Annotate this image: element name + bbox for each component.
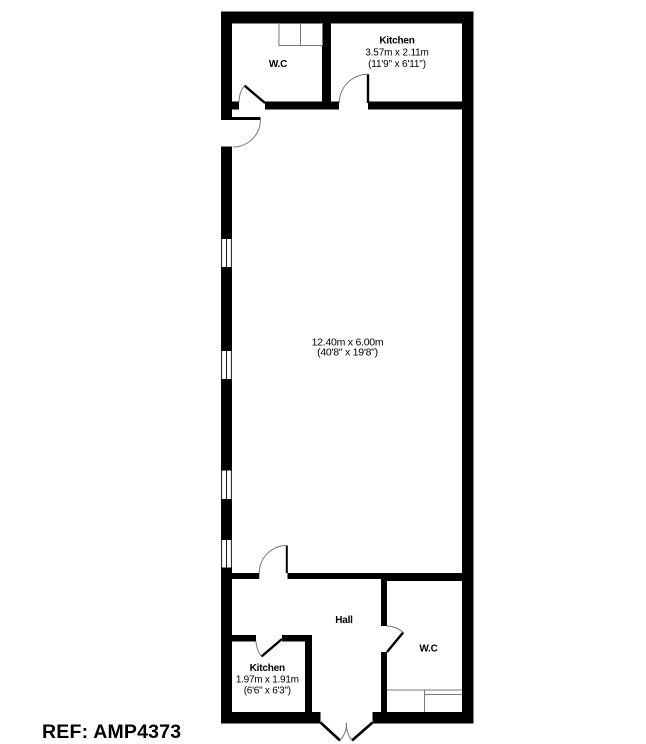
svg-text:(11'9" x 6'11"): (11'9" x 6'11")	[368, 59, 426, 70]
svg-text:(40'8" x 19'8"): (40'8" x 19'8")	[317, 346, 378, 358]
svg-text:Hall: Hall	[335, 615, 353, 626]
svg-text:REF: AMP4373: REF: AMP4373	[42, 721, 181, 743]
svg-text:3.57m x 2.11m: 3.57m x 2.11m	[365, 48, 428, 59]
svg-text:(6'6" x 6'3"): (6'6" x 6'3")	[244, 685, 291, 696]
svg-text:Kitchen: Kitchen	[250, 663, 285, 674]
svg-text:1.97m x 1.91m: 1.97m x 1.91m	[236, 675, 299, 686]
svg-text:W.C: W.C	[269, 59, 287, 70]
svg-text:W.C: W.C	[419, 644, 437, 655]
svg-text:Kitchen: Kitchen	[379, 35, 414, 46]
